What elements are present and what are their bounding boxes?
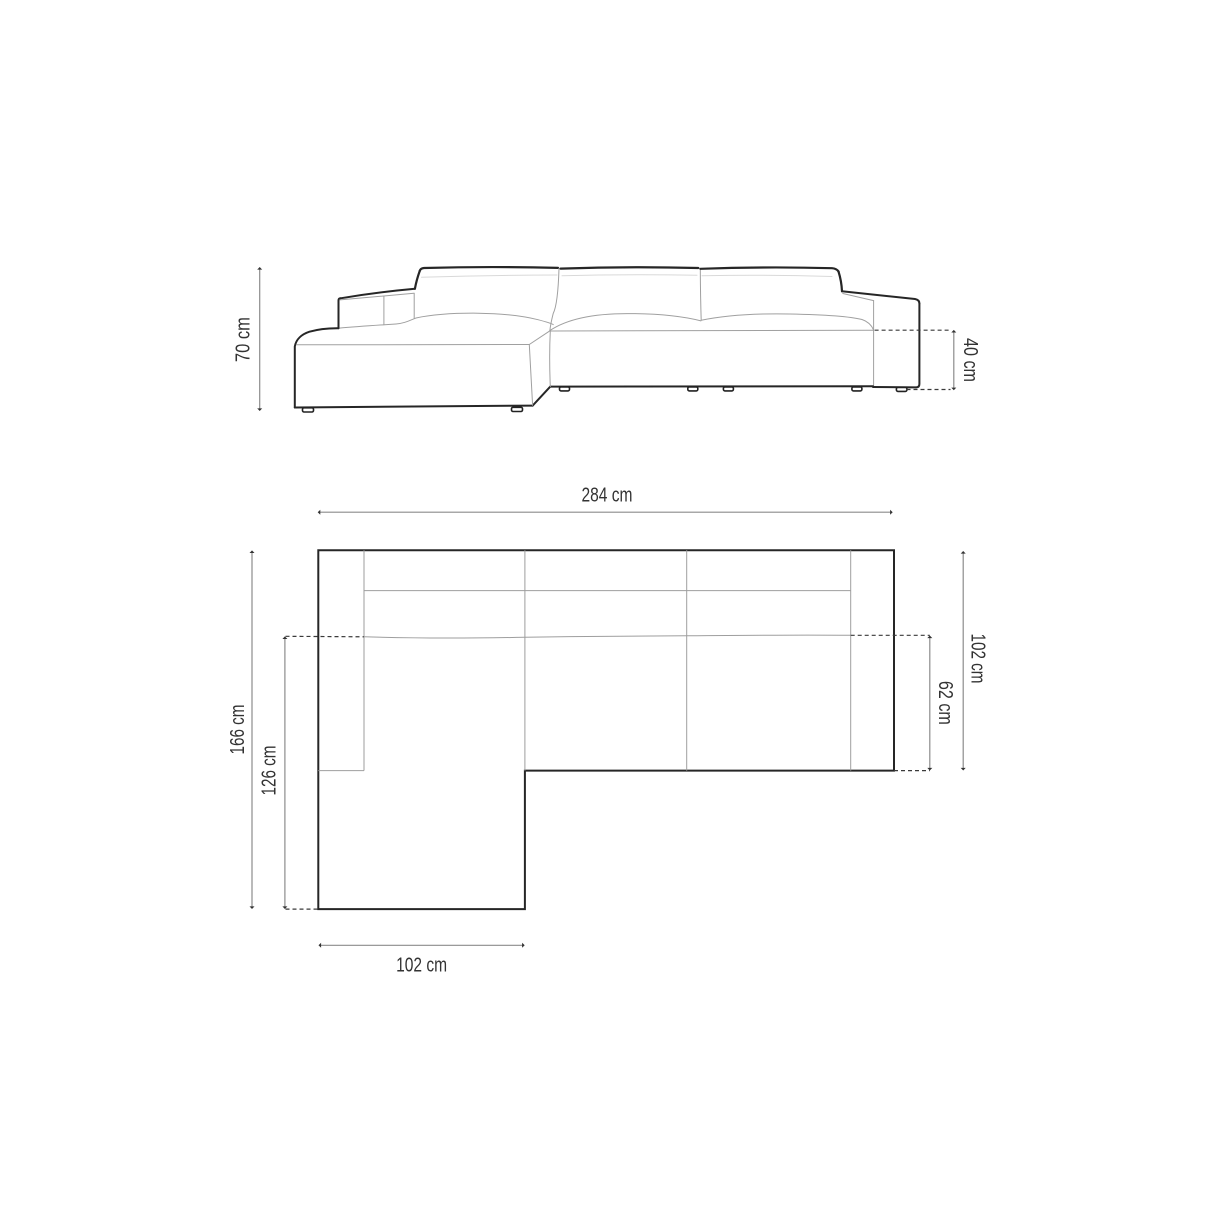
svg-text:284 cm: 284 cm — [582, 485, 633, 507]
svg-text:166 cm: 166 cm — [227, 705, 249, 755]
svg-text:102 cm: 102 cm — [966, 634, 988, 684]
svg-text:70 cm: 70 cm — [233, 317, 255, 362]
svg-text:126 cm: 126 cm — [259, 746, 281, 796]
svg-text:102 cm: 102 cm — [396, 955, 447, 977]
svg-text:62 cm: 62 cm — [934, 681, 956, 725]
svg-text:40 cm: 40 cm — [959, 338, 981, 382]
